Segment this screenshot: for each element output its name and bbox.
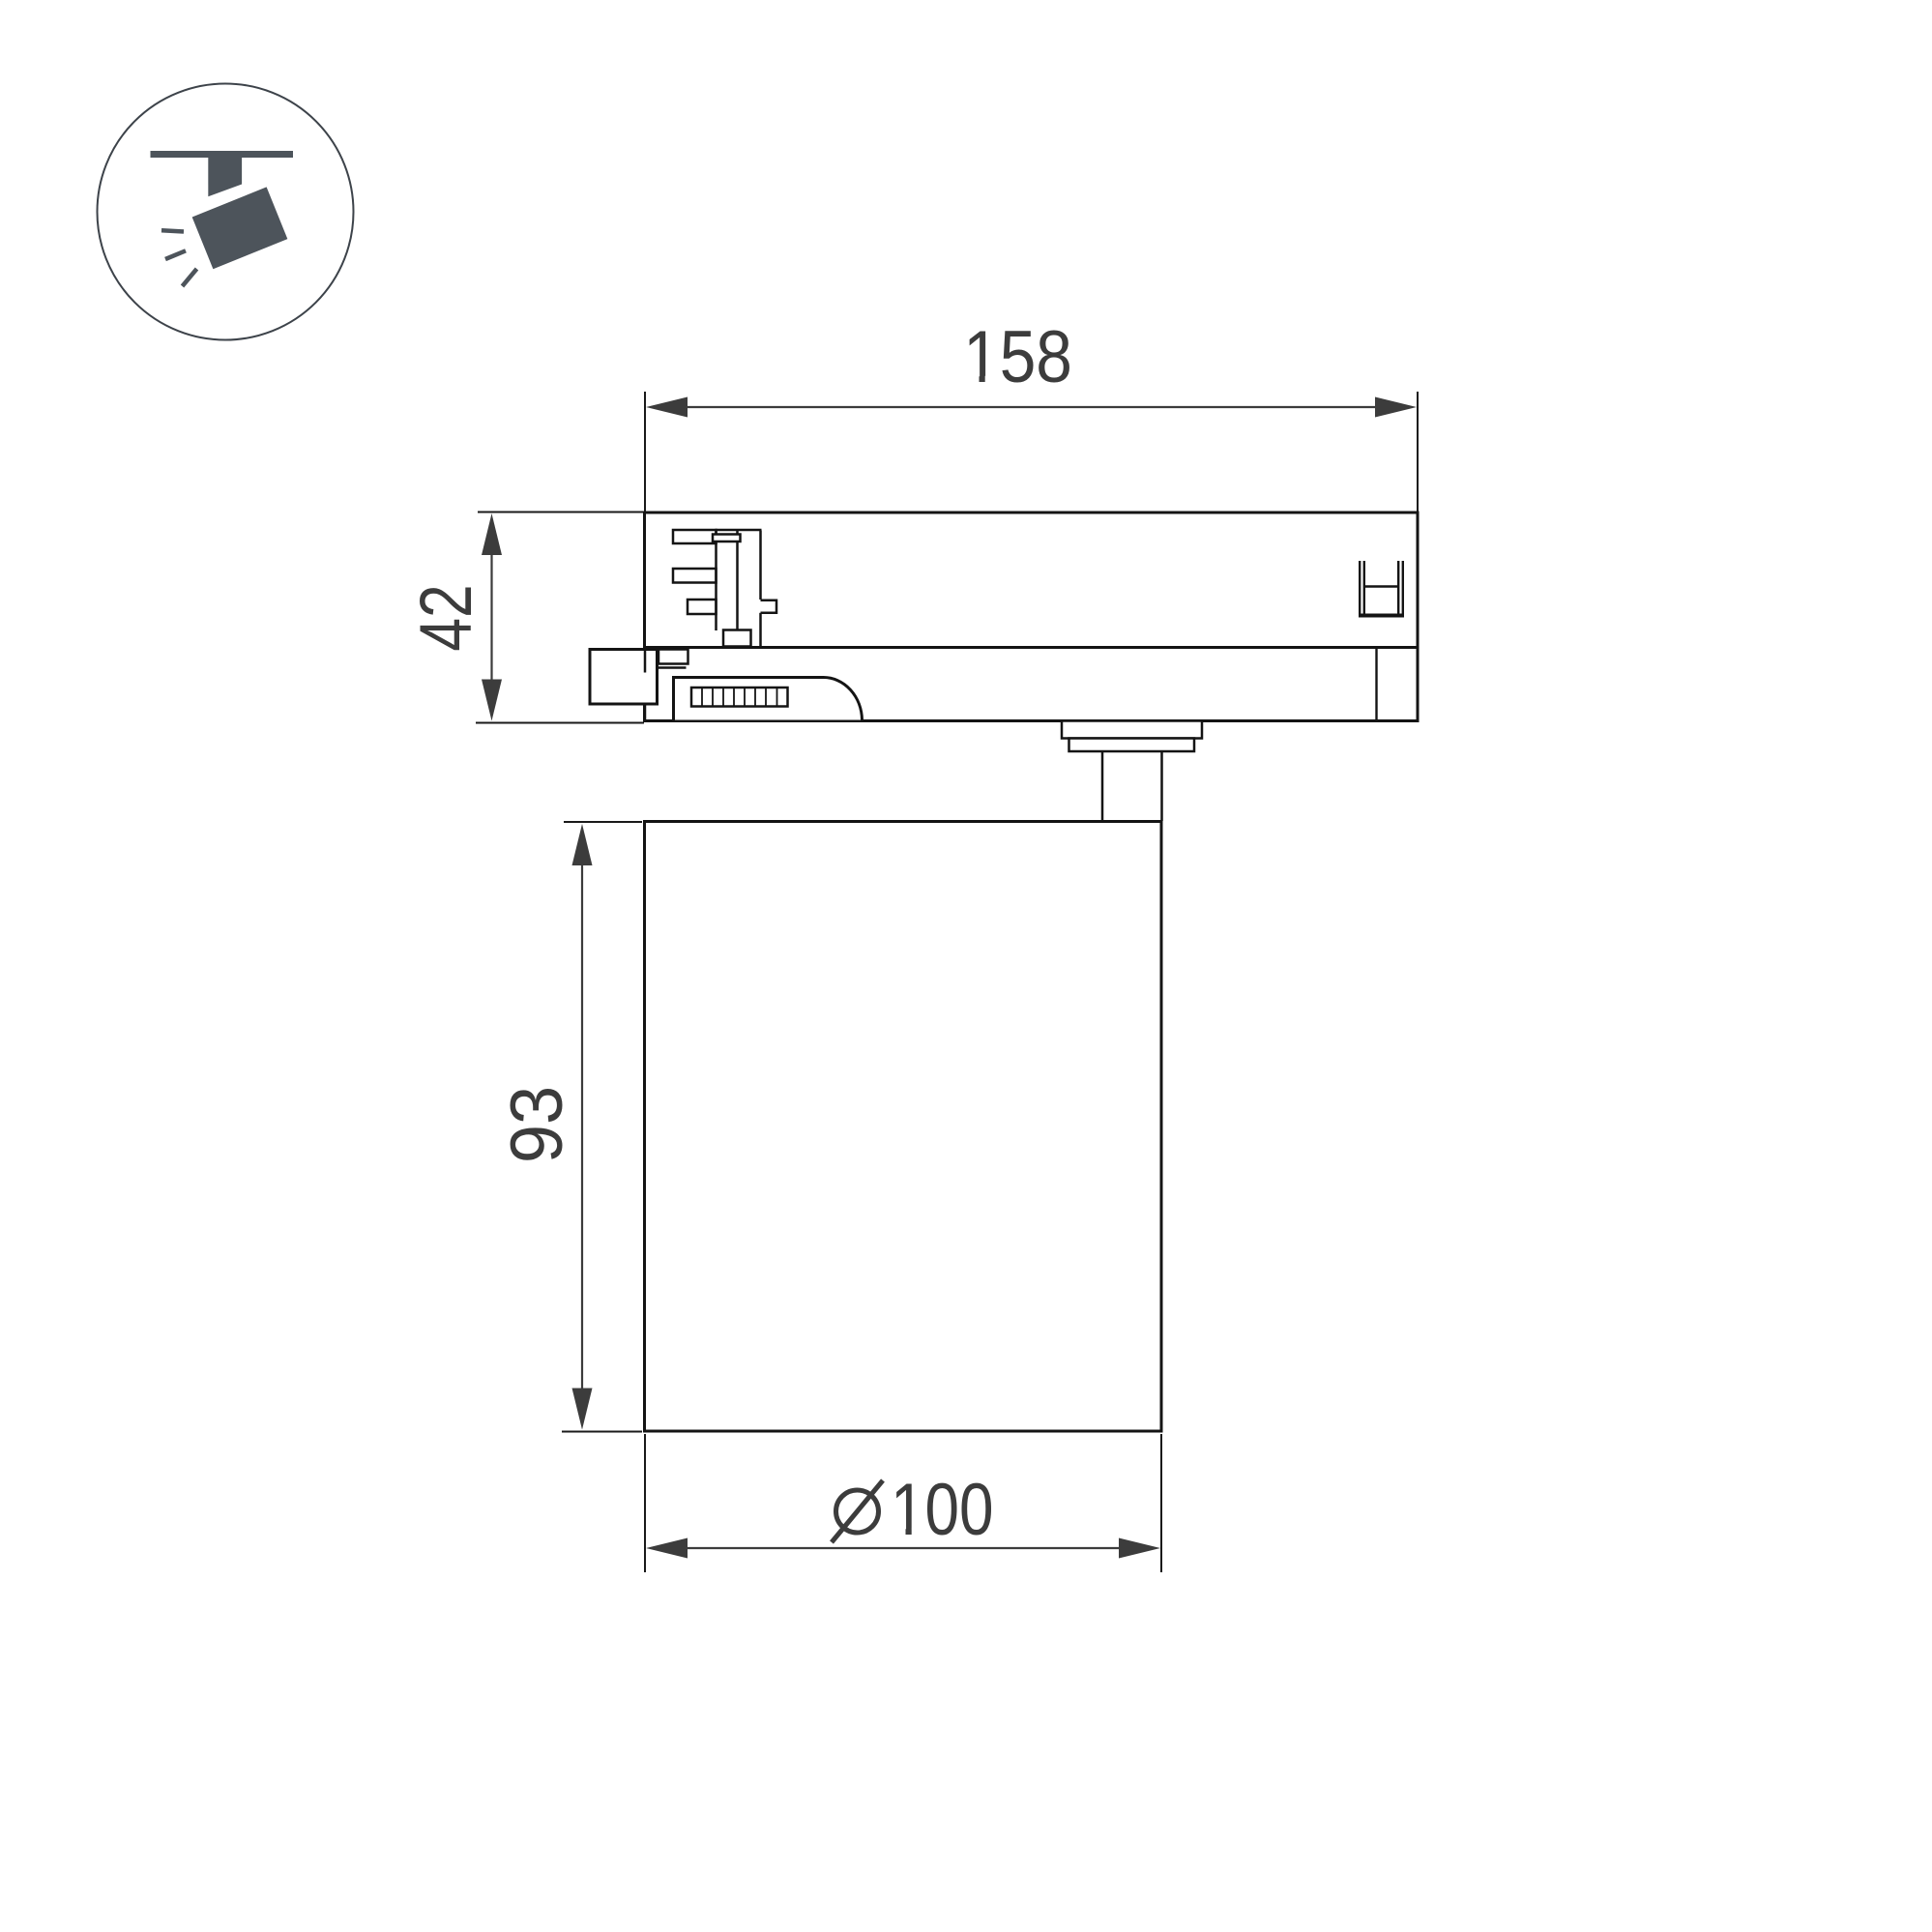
svg-text:158: 158: [963, 316, 1072, 398]
svg-text:42: 42: [404, 584, 486, 651]
svg-text:100: 100: [891, 1468, 994, 1551]
svg-text:93: 93: [495, 1086, 577, 1163]
